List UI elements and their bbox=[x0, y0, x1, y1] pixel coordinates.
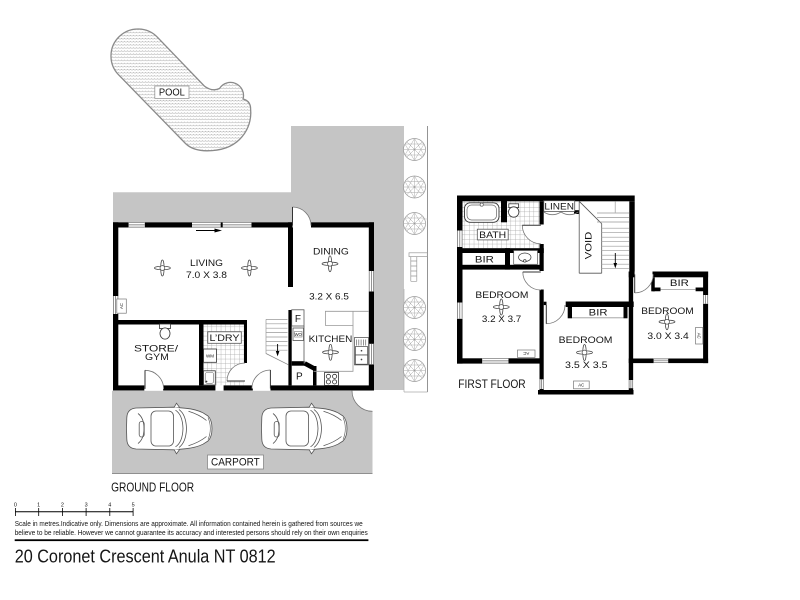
svg-text:POOL: POOL bbox=[159, 88, 186, 99]
svg-text:BEDROOM: BEDROOM bbox=[559, 335, 613, 346]
svg-text:3.2 X 3.7: 3.2 X 3.7 bbox=[482, 314, 521, 325]
svg-text:FIRST FLOOR: FIRST FLOOR bbox=[458, 377, 526, 391]
svg-text:3.0 X 3.4: 3.0 X 3.4 bbox=[647, 331, 688, 342]
svg-text:AC: AC bbox=[697, 333, 702, 339]
svg-text:7.0 X 3.8: 7.0 X 3.8 bbox=[186, 270, 227, 281]
svg-text:GYM: GYM bbox=[145, 352, 169, 363]
svg-text:believe to be reliable. Howeve: believe to be reliable. However we canno… bbox=[15, 530, 369, 537]
svg-text:AC: AC bbox=[523, 351, 529, 356]
svg-text:DINING: DINING bbox=[313, 247, 349, 258]
svg-text:3.2 X 6.5: 3.2 X 6.5 bbox=[309, 291, 349, 302]
svg-text:LIVING: LIVING bbox=[190, 258, 223, 269]
svg-text:VOID: VOID bbox=[584, 232, 595, 260]
svg-text:BIR: BIR bbox=[475, 254, 494, 265]
svg-text:KITCHEN: KITCHEN bbox=[309, 334, 353, 345]
svg-text:20 Coronet Crescent Anula NT 0: 20 Coronet Crescent Anula NT 0812 bbox=[15, 546, 276, 567]
svg-text:LINEN: LINEN bbox=[544, 201, 574, 212]
svg-text:AC: AC bbox=[119, 303, 124, 309]
svg-text:4: 4 bbox=[108, 503, 111, 509]
svg-text:3: 3 bbox=[85, 503, 88, 509]
svg-text:Scale in metres.Indicative onl: Scale in metres.Indicative only. Dimensi… bbox=[15, 521, 363, 528]
svg-text:GROUND FLOOR: GROUND FLOOR bbox=[111, 480, 194, 495]
svg-text:BIR: BIR bbox=[670, 278, 689, 289]
svg-text:2: 2 bbox=[61, 503, 64, 509]
svg-text:CARPORT: CARPORT bbox=[211, 457, 260, 469]
svg-text:5: 5 bbox=[132, 503, 135, 509]
svg-text:BIR: BIR bbox=[589, 307, 608, 318]
svg-text:0: 0 bbox=[14, 503, 17, 509]
svg-text:AC: AC bbox=[578, 383, 584, 388]
svg-text:F: F bbox=[295, 314, 301, 325]
svg-text:WO: WO bbox=[295, 332, 303, 337]
svg-text:L’DRY: L’DRY bbox=[210, 333, 241, 344]
svg-text:WM: WM bbox=[206, 354, 214, 359]
svg-text:BATH: BATH bbox=[479, 230, 506, 241]
svg-text:P: P bbox=[296, 371, 303, 382]
svg-text:3.5 X 3.5: 3.5 X 3.5 bbox=[565, 360, 608, 371]
svg-text:1: 1 bbox=[37, 503, 40, 509]
